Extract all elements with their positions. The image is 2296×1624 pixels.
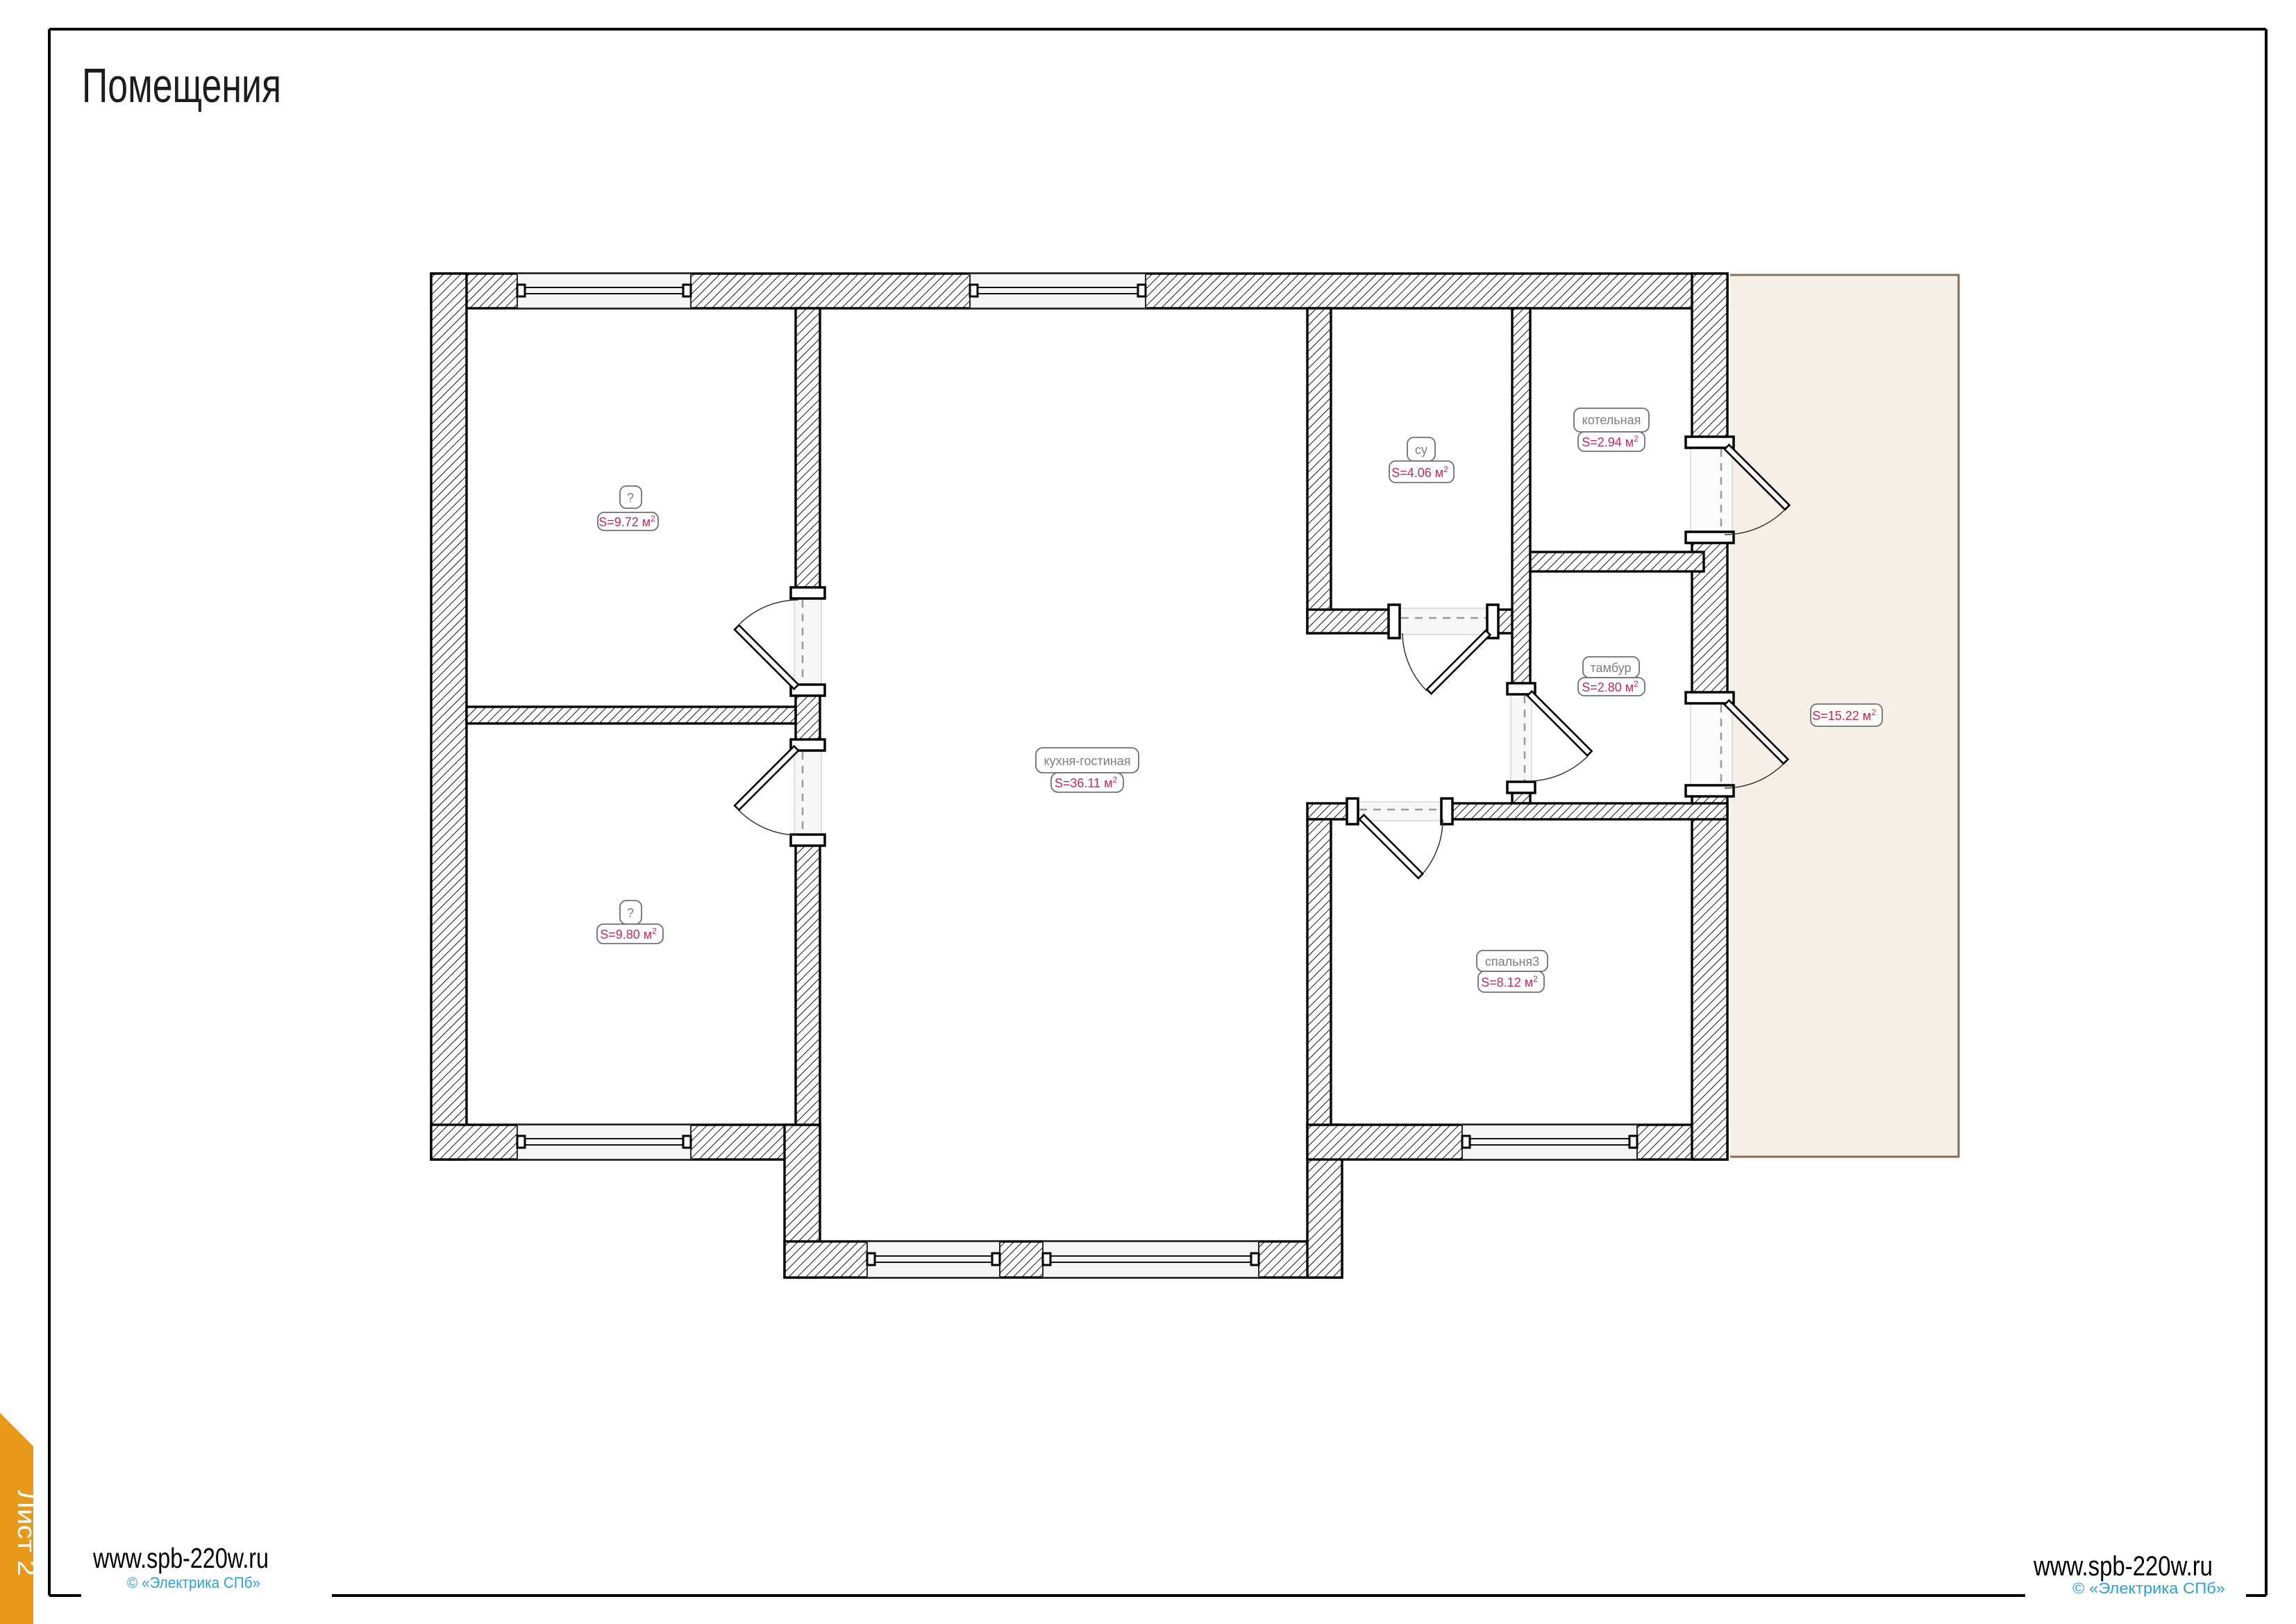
svg-text:S=15.22 м2: S=15.22 м2 xyxy=(1812,708,1876,723)
svg-text:www.spb-220w.ru: www.spb-220w.ru xyxy=(2033,1551,2213,1582)
svg-text:S=2.94 м2: S=2.94 м2 xyxy=(1582,434,1639,449)
svg-text:© «Электрика СПб»: © «Электрика СПб» xyxy=(127,1574,260,1591)
svg-text:www.spb-220w.ru: www.spb-220w.ru xyxy=(92,1542,269,1574)
svg-text:S=2.80 м2: S=2.80 м2 xyxy=(1582,679,1639,694)
svg-text:S=36.11 м2: S=36.11 м2 xyxy=(1055,775,1118,790)
svg-text:су: су xyxy=(1415,443,1427,457)
svg-text:спальня3: спальня3 xyxy=(1485,955,1539,969)
svg-text:Помещения: Помещения xyxy=(82,58,281,112)
svg-text:S=9.80 м2: S=9.80 м2 xyxy=(600,926,657,941)
svg-text:котельная: котельная xyxy=(1582,413,1641,427)
svg-text:?: ? xyxy=(627,906,634,920)
svg-text:S=8.12 м2: S=8.12 м2 xyxy=(1481,974,1538,989)
svg-text:тамбур: тамбур xyxy=(1591,661,1632,675)
svg-text:?: ? xyxy=(627,491,634,505)
svg-text:S=9.72 м2: S=9.72 м2 xyxy=(598,514,655,529)
svg-text:Лист 2: Лист 2 xyxy=(12,1490,41,1576)
svg-text:кухня-гостиная: кухня-гостиная xyxy=(1044,754,1131,768)
svg-text:S=4.06 м2: S=4.06 м2 xyxy=(1391,464,1448,480)
svg-text:© «Электрика СПб»: © «Электрика СПб» xyxy=(2072,1580,2225,1597)
